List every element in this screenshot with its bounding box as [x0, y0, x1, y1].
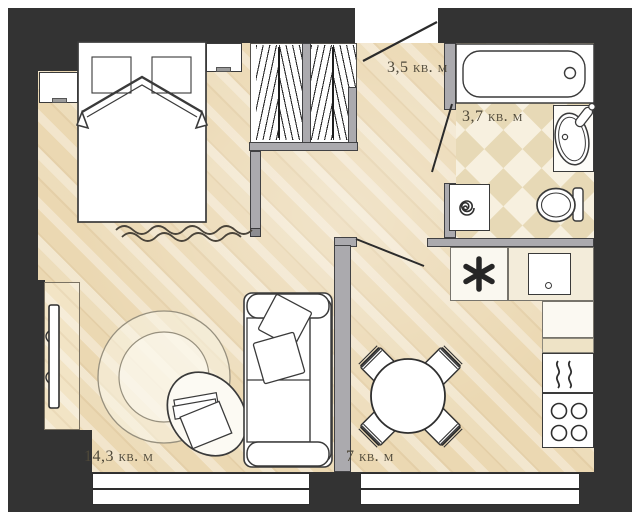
- bed: [77, 42, 207, 222]
- floor-plan: 3,5 кв. м 3,7 кв. м 14,3 кв. м 7 кв. м: [0, 0, 640, 515]
- entry-door: [363, 22, 437, 61]
- bathroom-sink: [551, 101, 597, 167]
- bathtub-drain: [565, 68, 576, 79]
- stove-burners: [552, 404, 587, 441]
- kitchen-door: [356, 239, 424, 266]
- bathroom-door: [432, 104, 452, 172]
- hallway-area-label: 3,5 кв. м: [387, 59, 448, 77]
- washing-machine-spiral-icon: [460, 201, 474, 215]
- oven-steam-icon: [557, 361, 571, 388]
- bathtub: [456, 44, 594, 103]
- bedside-rug: [116, 226, 252, 241]
- toilet: [537, 188, 583, 222]
- faucet: [574, 101, 598, 128]
- sofa-armrest-bottom: [247, 442, 329, 466]
- furniture-line-art: [0, 0, 640, 515]
- dining-table: [371, 359, 445, 433]
- tv: [46, 305, 59, 408]
- kitchen-area-label: 7 кв. м: [346, 448, 394, 466]
- living-room-area-label: 14,3 кв. м: [84, 448, 153, 466]
- bathroom-area-label: 3,7 кв. м: [462, 108, 523, 126]
- sofa-backrest: [310, 298, 331, 462]
- fridge-icon: [466, 259, 492, 289]
- sofa: [244, 293, 332, 467]
